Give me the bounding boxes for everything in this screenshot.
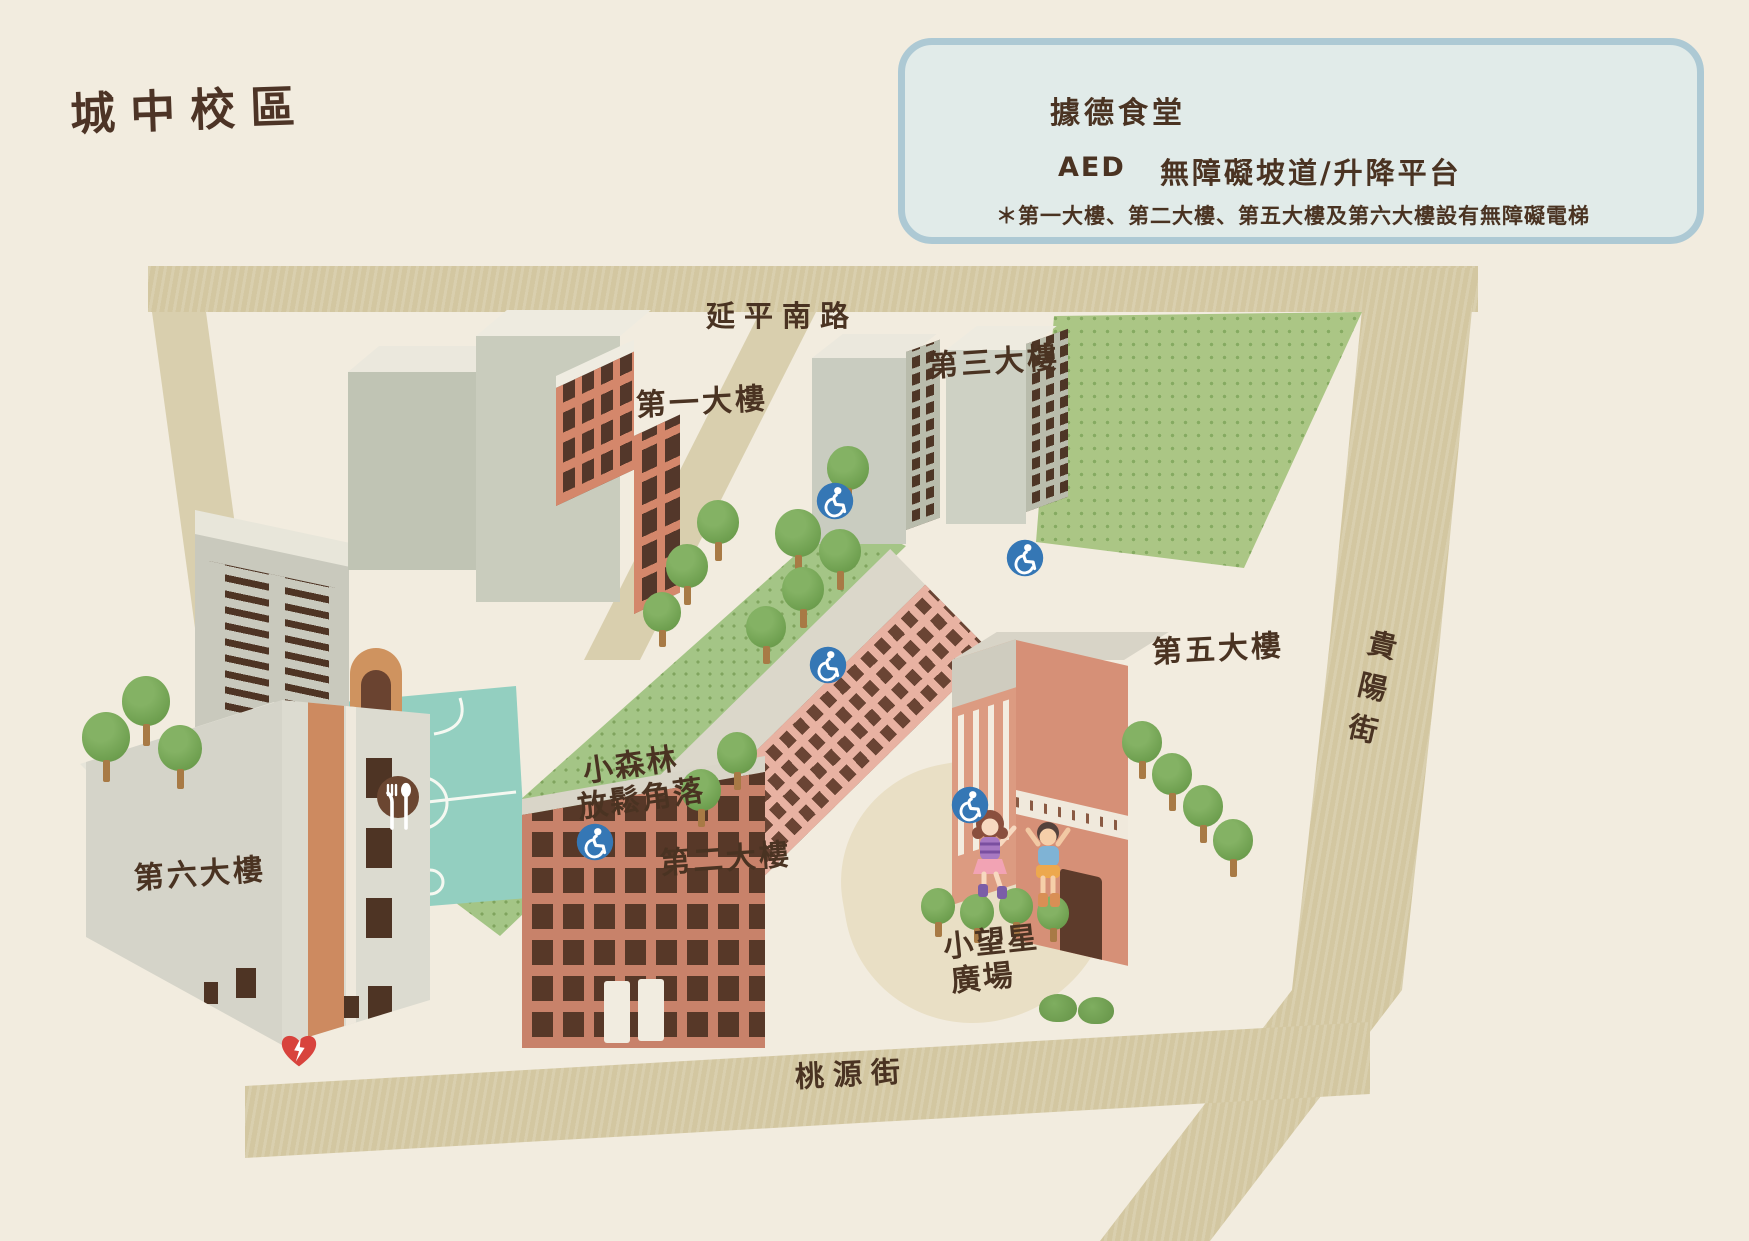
street-label-north: 延平南路 bbox=[706, 300, 858, 333]
legend-canteen-label: 據德食堂 bbox=[1050, 88, 1186, 132]
b6-window bbox=[344, 996, 359, 1018]
b1-roof-main bbox=[476, 310, 651, 336]
b2-door bbox=[638, 979, 664, 1041]
b6-window bbox=[366, 898, 392, 938]
bush bbox=[1078, 997, 1114, 1024]
canteen-icon bbox=[376, 776, 420, 834]
wheelchair-accessible-icon bbox=[816, 482, 854, 520]
tree bbox=[819, 529, 861, 590]
tree bbox=[782, 567, 824, 628]
wheelchair-accessible-icon bbox=[576, 823, 614, 861]
legend-aed-label: AED bbox=[1058, 152, 1126, 183]
b6-window bbox=[204, 982, 218, 1004]
green-field bbox=[1036, 312, 1366, 570]
plaza-label: 小望星 廣場 bbox=[942, 921, 1045, 1000]
wheelchair-accessible-icon bbox=[951, 786, 989, 824]
aed-icon bbox=[278, 1031, 320, 1070]
legend-accessible-label: 無障礙坡道/升降平台 bbox=[1160, 150, 1462, 192]
b1-face-left bbox=[348, 372, 480, 570]
b6-orange-stripe bbox=[308, 700, 344, 1060]
b6-window bbox=[236, 968, 256, 998]
wheelchair-accessible-icon bbox=[1006, 539, 1044, 577]
bush bbox=[1039, 994, 1077, 1023]
page-title: 城中校區 bbox=[69, 70, 311, 143]
tree bbox=[1213, 819, 1253, 877]
campus-map: 延平南路 貴陽街 桃源街 第一大樓 第三大樓 第五大樓 第六大樓 第二大樓 小森… bbox=[0, 0, 1749, 1241]
tree bbox=[643, 592, 681, 647]
b2-door bbox=[604, 981, 630, 1043]
b6-side-face bbox=[282, 700, 432, 1065]
legend-footnote: ＊第一大樓、第二大樓、第五大樓及第六大樓設有無障礙電梯 bbox=[996, 200, 1590, 230]
building-1-label: 第一大樓 bbox=[635, 383, 769, 424]
tree bbox=[717, 732, 757, 790]
b6-window bbox=[368, 986, 392, 1024]
building-5-label: 第五大樓 bbox=[1151, 630, 1285, 671]
wheelchair-accessible-icon bbox=[809, 646, 847, 684]
tree bbox=[158, 725, 202, 789]
tree bbox=[746, 606, 786, 664]
street-label-south: 桃源街 bbox=[794, 1055, 910, 1094]
tree bbox=[775, 509, 821, 576]
building-2-label: 第二大樓 bbox=[659, 838, 793, 882]
